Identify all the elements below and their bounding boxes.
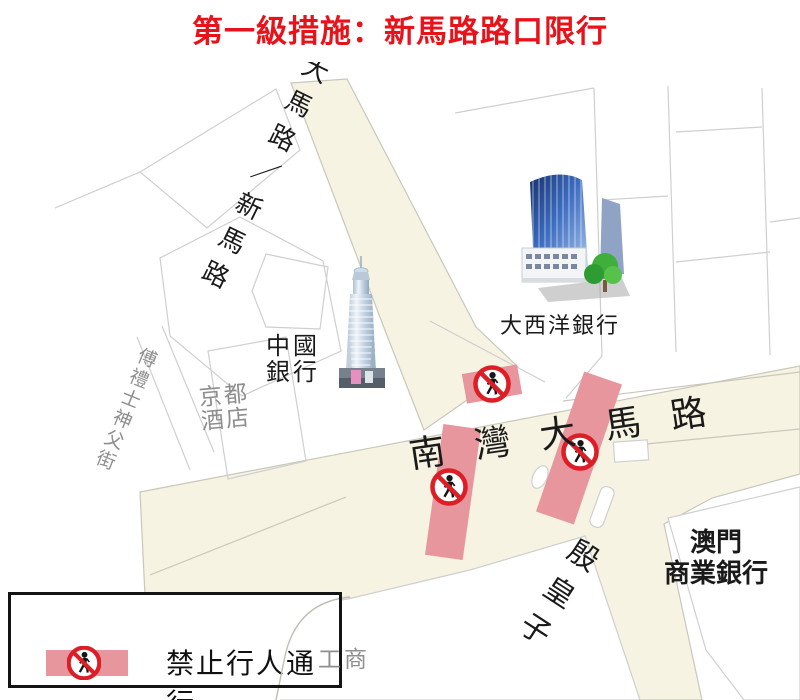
- page-title: 第一級措施：新馬路路口限行: [0, 6, 800, 51]
- no-pedestrian-icon: [475, 367, 508, 400]
- legend-box-border: [8, 592, 342, 688]
- background-map-text: 工商: [318, 640, 370, 674]
- boc-label-line1: 中國: [266, 333, 320, 359]
- hotel-metropole-label: 京都 酒店: [198, 382, 252, 434]
- bank-of-china-label: 中國 銀行: [266, 333, 320, 385]
- mcb-label-line1: 澳門: [658, 528, 774, 559]
- bnu-label: 大西洋銀行: [500, 308, 620, 340]
- map-viewport: 大馬路／新馬路 南灣大馬路 殷皇子 傅禮士神父街 京都 酒店 中國 銀行 大西洋…: [0, 62, 800, 700]
- mcb-label-line2: 商業銀行: [658, 559, 774, 590]
- hotel-label-line2: 酒店: [200, 406, 252, 434]
- macau-commercial-bank-label: 澳門 商業銀行: [658, 528, 774, 590]
- traffic-restriction-map-page: 第一級措施：新馬路路口限行: [0, 0, 800, 700]
- no-pedestrian-icon: [432, 470, 465, 503]
- bnu-building: [522, 174, 630, 302]
- boc-label-line2: 銀行: [266, 359, 320, 385]
